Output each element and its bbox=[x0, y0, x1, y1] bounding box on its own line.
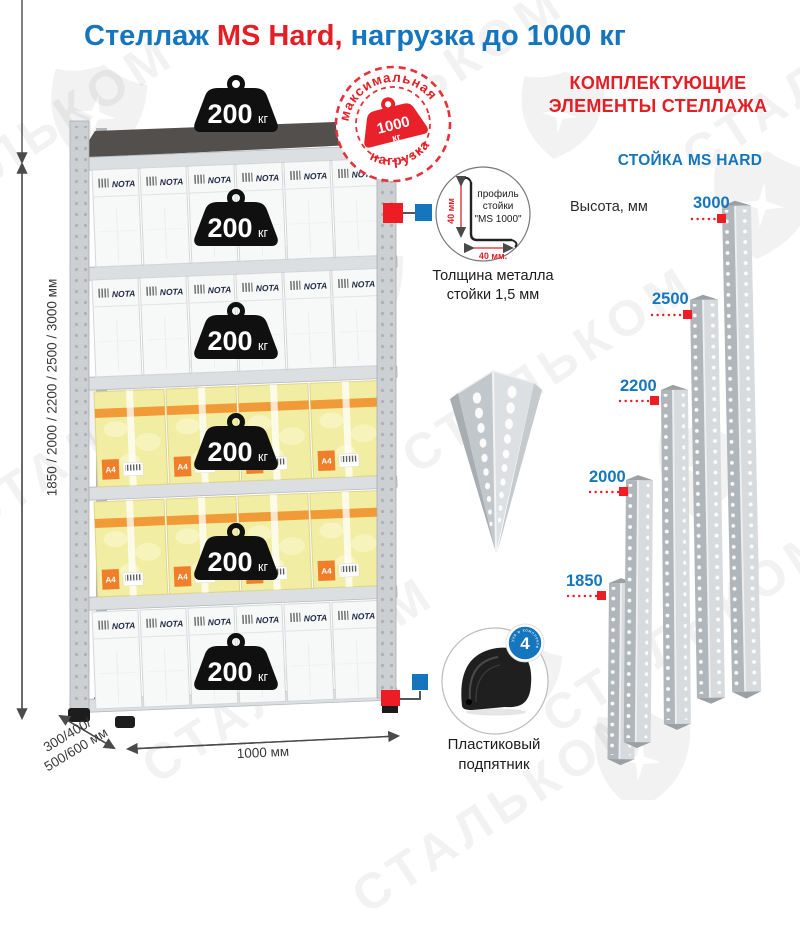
profile-caption: Толщина металла стойки 1,5 мм bbox=[413, 267, 573, 305]
page-title: Стеллаж MS Hard, нагрузка до 1000 кг bbox=[84, 20, 626, 53]
post-height-2200: 2200 bbox=[620, 377, 657, 396]
post-height-1850: 1850 bbox=[566, 572, 603, 591]
infographic-page: { "title": { "prefix": "Стеллаж ", "acce… bbox=[0, 0, 800, 800]
foot-caption-line2: подпятник bbox=[414, 755, 574, 775]
post-height-2000: 2000 bbox=[589, 468, 626, 487]
height-dimension-label: 1850 / 2000 / 2200 / 2500 / 3000 мм bbox=[45, 228, 60, 548]
foot-caption: Пластиковый подпятник bbox=[414, 735, 574, 775]
components-heading-line2: ЭЛЕМЕНТЫ СТЕЛЛАЖА bbox=[528, 95, 788, 118]
components-subheading: СТОЙКА MS HARD bbox=[590, 152, 790, 170]
depth-dimension-label: 300/400/ 500/600 мм bbox=[22, 704, 122, 782]
title-accent: MS Hard, bbox=[217, 20, 343, 52]
post-height-2500: 2500 bbox=[652, 290, 689, 309]
components-heading-line1: КОМПЛЕКТУЮЩИЕ bbox=[528, 72, 788, 95]
components-heading: КОМПЛЕКТУЮЩИЕ ЭЛЕМЕНТЫ СТЕЛЛАЖА bbox=[528, 72, 788, 117]
height-axis-label: Высота, мм bbox=[570, 199, 648, 215]
profile-caption-line1: Толщина металла bbox=[413, 267, 573, 286]
width-dimension-label: 1000 мм bbox=[213, 743, 314, 762]
profile-caption-line2: стойки 1,5 мм bbox=[413, 286, 573, 305]
post-height-3000: 3000 bbox=[693, 194, 730, 213]
title-suffix: нагрузка до 1000 кг bbox=[343, 20, 626, 52]
title-prefix: Стеллаж bbox=[84, 20, 217, 52]
labels-layer: Стеллаж MS Hard, нагрузка до 1000 кг КОМ… bbox=[0, 0, 800, 800]
foot-caption-line1: Пластиковый bbox=[414, 735, 574, 755]
